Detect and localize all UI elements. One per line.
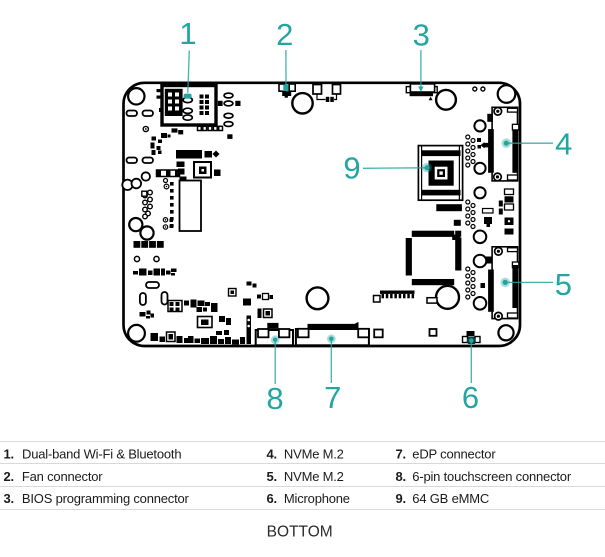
svg-text:7. eDP connector: 7. eDP connector bbox=[396, 447, 497, 462]
svg-text:6: 6 bbox=[462, 380, 479, 415]
svg-text:BOTTOM: BOTTOM bbox=[267, 524, 333, 541]
svg-text:4. NVMe M.2: 4. NVMe M.2 bbox=[267, 447, 344, 462]
svg-text:6. Microphone: 6. Microphone bbox=[267, 491, 350, 506]
svg-text:1: 1 bbox=[179, 16, 196, 51]
svg-text:3. BIOS programming connector: 3. BIOS programming connector bbox=[4, 491, 190, 506]
svg-text:8: 8 bbox=[266, 381, 283, 416]
svg-text:8. 6-pin touchscreen connector: 8. 6-pin touchscreen connector bbox=[396, 469, 572, 484]
svg-text:2. Fan connector: 2. Fan connector bbox=[4, 469, 104, 484]
svg-text:3: 3 bbox=[413, 18, 430, 53]
svg-text:2: 2 bbox=[276, 17, 293, 52]
svg-text:1. Dual-band Wi-Fi & Bluetooth: 1. Dual-band Wi-Fi & Bluetooth bbox=[4, 447, 182, 462]
svg-text:9. 64 GB eMMC: 9. 64 GB eMMC bbox=[396, 491, 490, 506]
svg-text:7: 7 bbox=[324, 380, 341, 415]
svg-text:4: 4 bbox=[555, 127, 572, 162]
svg-text:5: 5 bbox=[555, 267, 572, 302]
svg-text:9: 9 bbox=[343, 150, 360, 185]
svg-text:5. NVMe M.2: 5. NVMe M.2 bbox=[267, 469, 344, 484]
